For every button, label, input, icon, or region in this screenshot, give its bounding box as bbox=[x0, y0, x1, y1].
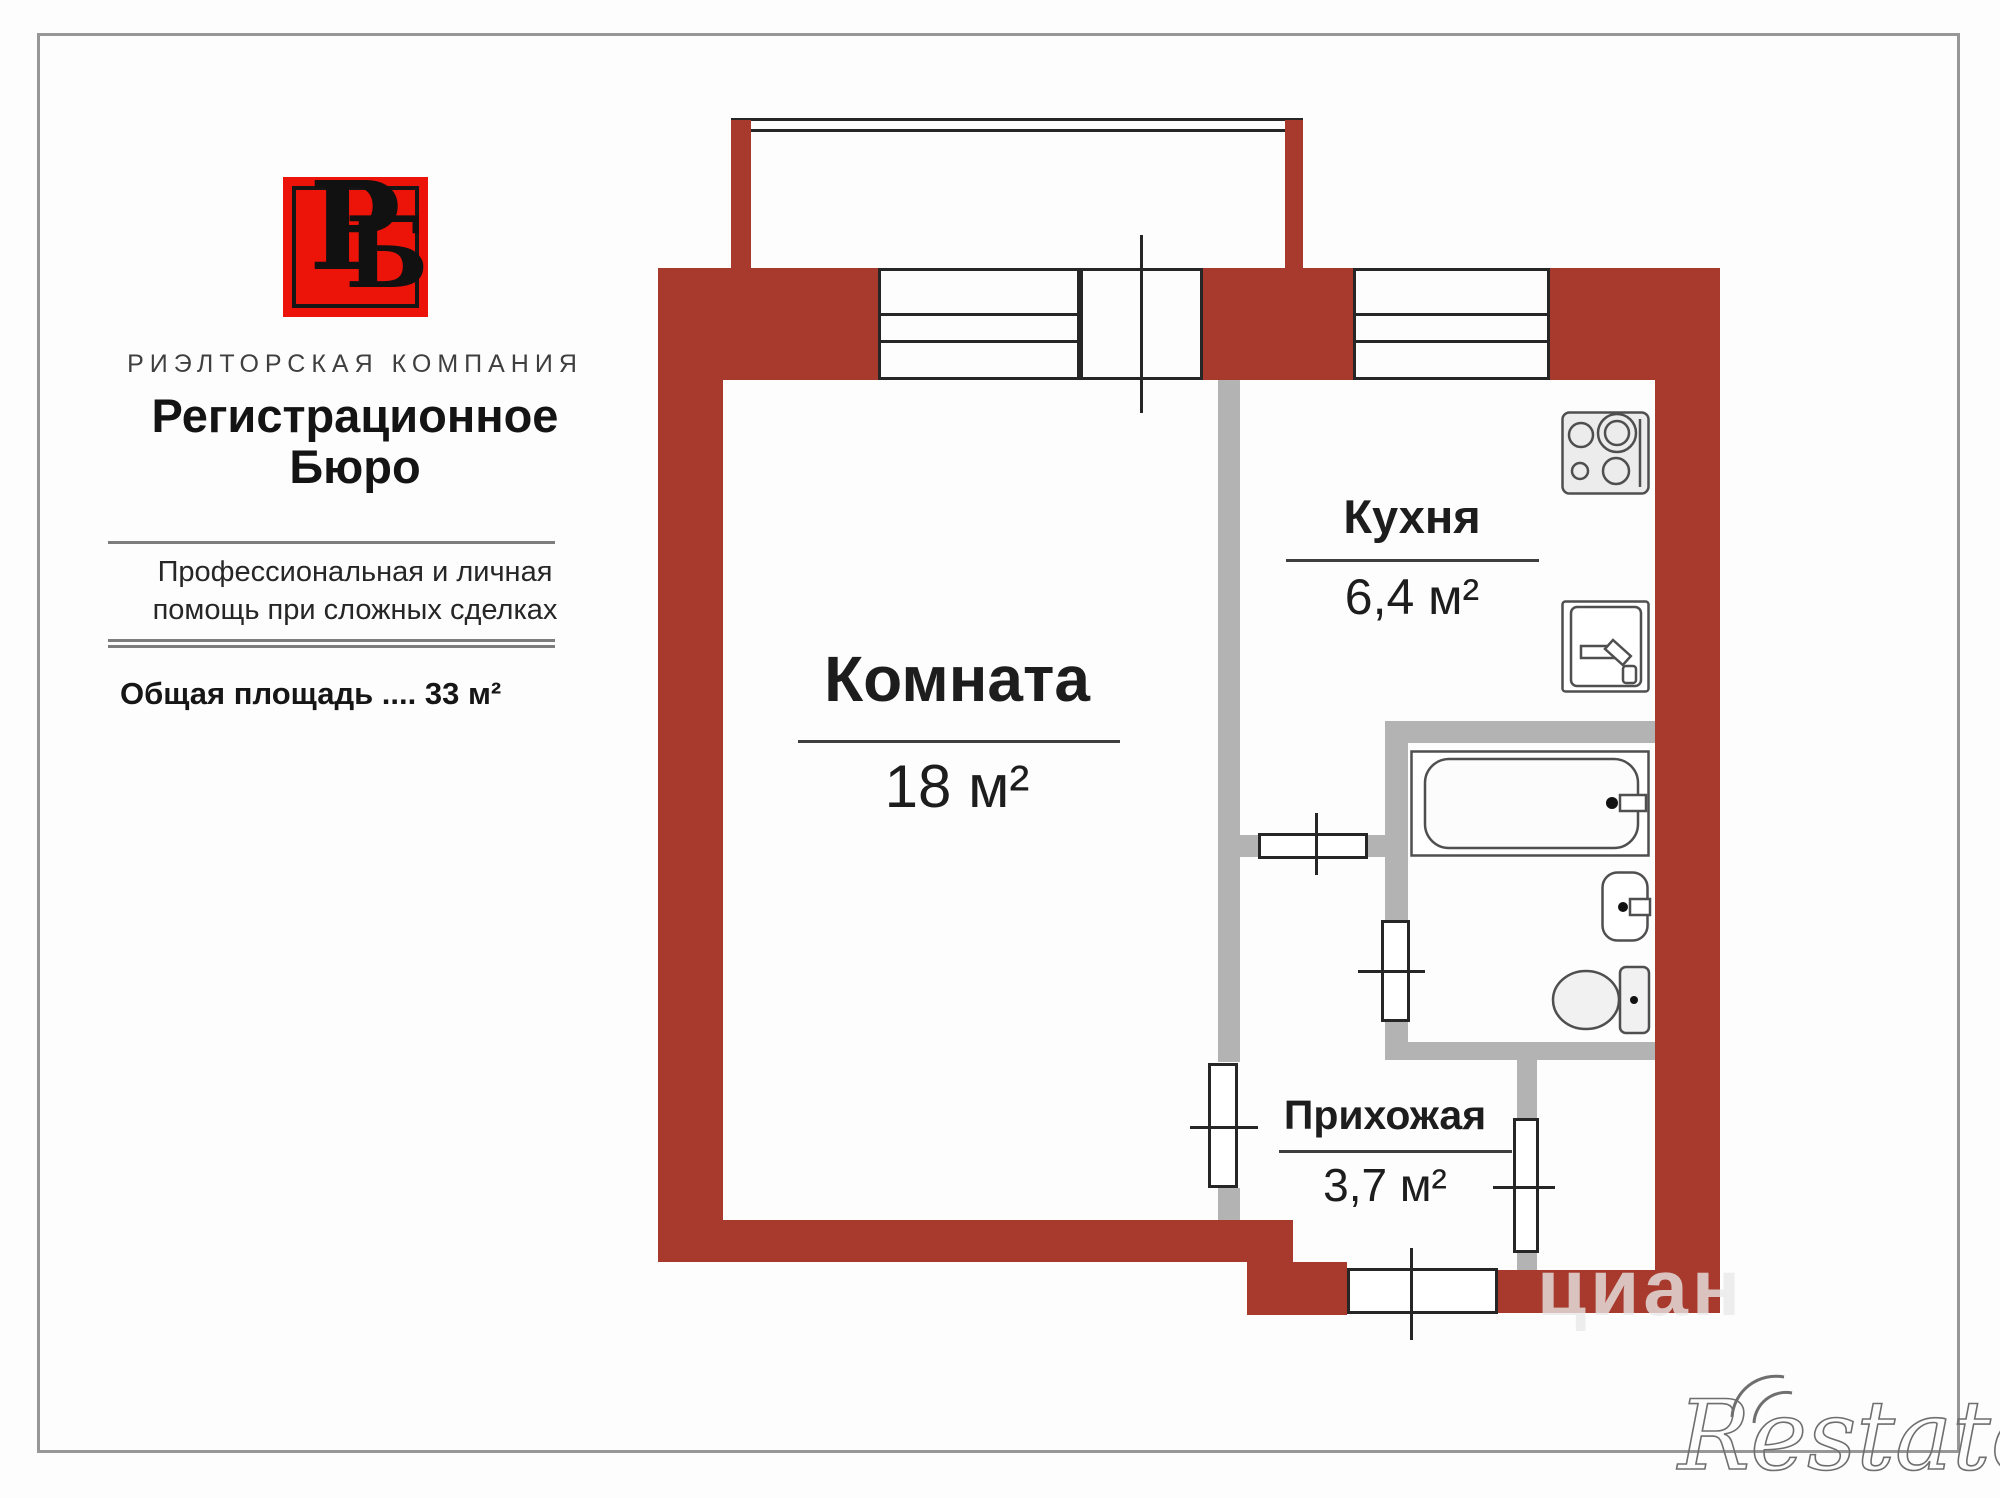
bathtub-icon bbox=[1410, 750, 1650, 857]
hallway-area-label: 3,7 м² bbox=[1262, 1158, 1508, 1212]
wall-left bbox=[658, 268, 723, 1262]
cian-watermark: циан bbox=[1537, 1242, 1744, 1334]
kitchen-door-leaf bbox=[1258, 833, 1368, 859]
balcony-railing-outer-line bbox=[731, 118, 1303, 121]
balcony-wall-left bbox=[731, 120, 751, 268]
tagline-line1: Профессиональная и личная bbox=[80, 556, 630, 589]
wall-bottom-room bbox=[658, 1220, 1293, 1262]
toilet-icon bbox=[1550, 965, 1652, 1035]
kitchen-window-frame-line bbox=[1356, 340, 1547, 343]
company-name-line1: Регистрационное bbox=[80, 388, 630, 443]
kitchen-door-axis-line bbox=[1315, 813, 1318, 875]
room-label: Комната bbox=[757, 642, 1157, 716]
kitchen-area-label: 6,4 м² bbox=[1286, 568, 1538, 626]
balcony-railing-inner-line bbox=[731, 129, 1303, 132]
hallway-label-underline bbox=[1279, 1150, 1512, 1153]
hallway-label: Прихожая bbox=[1262, 1092, 1508, 1139]
floor-plan-page: Р Б РИЭЛТОРСКАЯ КОМПАНИЯ Регистрационное… bbox=[0, 0, 2000, 1498]
room-door-axis-line bbox=[1190, 1126, 1258, 1129]
wall-top-middle-segment bbox=[1203, 268, 1353, 380]
kitchen-label: Кухня bbox=[1286, 489, 1538, 544]
kitchen-sink-icon bbox=[1561, 600, 1650, 693]
room-label-underline bbox=[798, 740, 1120, 743]
kitchen-window-frame-line bbox=[1356, 313, 1547, 316]
wall-right bbox=[1655, 268, 1720, 1313]
room-window-frame-line bbox=[881, 340, 1077, 343]
tagline-line2: помощь при сложных сделках bbox=[80, 594, 630, 627]
logo-letter-b: Б bbox=[345, 205, 429, 303]
divider-line bbox=[108, 541, 555, 544]
company-name-line2: Бюро bbox=[80, 439, 630, 494]
wall-bathroom-top bbox=[1408, 721, 1655, 743]
balcony-wall-right bbox=[1285, 120, 1303, 268]
wall-room-hall-stub bbox=[1218, 1188, 1240, 1220]
bathroom-door-axis-line bbox=[1358, 970, 1425, 973]
balcony-door-axis-line bbox=[1140, 235, 1143, 413]
total-area-label: Общая площадь .... 33 м² bbox=[120, 676, 501, 712]
wall-room-kitchen-divider bbox=[1218, 380, 1240, 1062]
kitchen-label-underline bbox=[1286, 559, 1539, 562]
restate-watermark: Restate bbox=[1612, 1365, 2000, 1498]
restate-watermark-text: Restate bbox=[1676, 1380, 2000, 1492]
wall-bottom-step bbox=[1247, 1262, 1347, 1315]
kitchen-window bbox=[1353, 268, 1550, 380]
wall-bathroom-bottom bbox=[1408, 1042, 1655, 1060]
company-type-label: РИЭЛТОРСКАЯ КОМПАНИЯ bbox=[80, 350, 630, 379]
room-area-label: 18 м² bbox=[757, 752, 1157, 821]
double-divider-line bbox=[108, 639, 555, 648]
washbasin-icon bbox=[1601, 871, 1653, 943]
entrance-door-axis-line bbox=[1410, 1248, 1413, 1340]
entrance-door-leaf bbox=[1347, 1268, 1498, 1314]
room-window-frame-line bbox=[881, 313, 1077, 316]
stove-icon bbox=[1561, 411, 1650, 495]
room-window bbox=[878, 268, 1080, 380]
company-logo: Р Б bbox=[283, 177, 428, 317]
